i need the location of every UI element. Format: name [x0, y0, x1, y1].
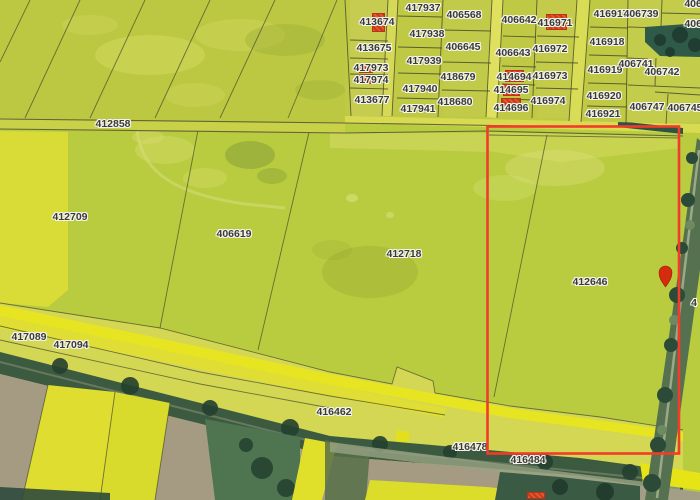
- top-left-strip-parcels: [0, 0, 350, 125]
- aerial-map-canvas: [0, 0, 700, 500]
- parcel-cluster: [345, 0, 700, 124]
- map-viewport[interactable]: 4128584127094066194127184126464170894170…: [0, 0, 700, 500]
